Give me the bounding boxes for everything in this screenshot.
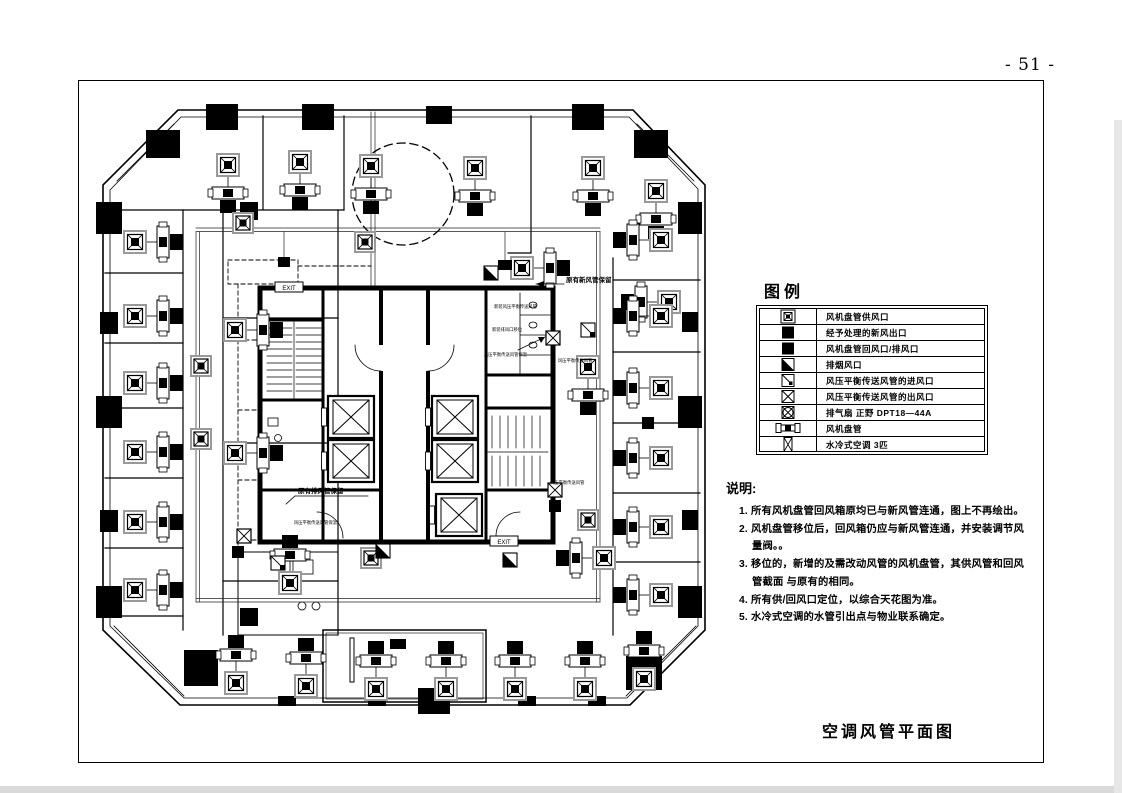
drawing-title: 空调风管平面图 [822, 718, 955, 742]
notes-heading: 说明: [726, 478, 1026, 497]
floor-plan: EXIT EXIT [88, 90, 714, 722]
pressure-balance-duct-outlet-icon [778, 389, 798, 404]
note-item: 2. 风机盘管移位后，回风箱仍应与新风管连通，并安装调节风量阀。。 [726, 521, 1026, 556]
fan-coil-supply-outlet-icon [778, 309, 798, 324]
legend-row: 风压平衡传送风管的进风口 [760, 373, 984, 389]
annotation-relocate: 新装排风口移位 [492, 326, 523, 333]
page-number: - 51 - [995, 55, 1065, 75]
door-arcs [355, 345, 454, 371]
duct-lines [196, 112, 600, 602]
scan-edge [0, 786, 1122, 793]
annotation-exhaust: 原有排风管保留 [298, 486, 344, 495]
legend-table: 风机盘管供风口 经予处理的新风出口 风机盘管回风口/排风口 排烟风口 风压平衡传… [756, 305, 988, 455]
drawing-sheet: { "page": { "number": "- 51 -", "drawing… [0, 0, 1122, 793]
exhaust-fan-icon [778, 405, 798, 420]
supply-diffusers [191, 213, 598, 568]
legend-row: 风压平衡传送风管的出风口 [760, 389, 984, 405]
annotation-pressure-duct: 风压平衡传送风管 [558, 357, 593, 364]
core-hall-walls [381, 288, 428, 542]
fan-coil-return-exhaust-outlet-icon [778, 341, 798, 356]
elevators [322, 396, 483, 536]
notes-section: 说明: 1. 所有风机盘管回风箱原均已与新风管连通，图上不再绘出。 2. 风机盘… [726, 478, 1026, 627]
annotation-pressure-1: 风压平衡传送风管保温 [294, 519, 338, 526]
core: EXIT EXIT [260, 282, 553, 546]
legend-row: 风机盘管 [760, 421, 984, 437]
legend-row: 排气扇 正野 DPT18—44A [760, 405, 984, 421]
annotation-fresh-air: 原有新风管保留 [566, 275, 612, 284]
building-outline [103, 110, 705, 705]
note-item: 5. 水冷式空调的水管引出点与物业联系确定。 [726, 609, 1026, 627]
legend-row: 风机盘管回风口/排风口 [760, 341, 984, 357]
legend-heading: 图例 [764, 278, 804, 302]
stair-right [488, 416, 548, 486]
treated-fresh-air-outlet-icon [778, 325, 798, 340]
smoke-exhaust-outlet-icon [778, 357, 798, 372]
note-item: 3. 移位的，新增的及需改动风管的风机盘管，其供风管和回风管截面 与原有的相同。 [726, 556, 1026, 591]
scan-edge [1114, 120, 1122, 793]
small-outlets [237, 266, 595, 570]
legend-row: 水冷式空调 3匹 [760, 437, 984, 452]
annotation-pressure-duct-2: 风压平衡传送风管 [550, 479, 585, 486]
legend-row: 风机盘管供风口 [760, 309, 984, 325]
note-item: 4. 所有供/回风口定位，以综合天花图为准。 [726, 592, 1026, 610]
note-item: 1. 所有风机盘管回风箱原均已与新风管连通，图上不再绘出。 [726, 503, 1026, 521]
svg-text:EXIT: EXIT [497, 540, 511, 546]
annotation-new-pressure-duct: 新装风压平衡传送风管 [494, 303, 538, 310]
door-arcs [317, 512, 520, 538]
pressure-balance-duct-inlet-icon [778, 373, 798, 388]
svg-text:EXIT: EXIT [282, 286, 296, 292]
room-partitions [105, 116, 700, 702]
annotation-pressure-2: 风压平衡传送风管保温 [484, 351, 528, 358]
legend-row: 排烟风口 [760, 357, 984, 373]
water-cooled-ac-icon [778, 437, 798, 452]
legend-row: 经予处理的新风出口 [760, 325, 984, 341]
fan-coil-unit-icon [774, 421, 802, 436]
